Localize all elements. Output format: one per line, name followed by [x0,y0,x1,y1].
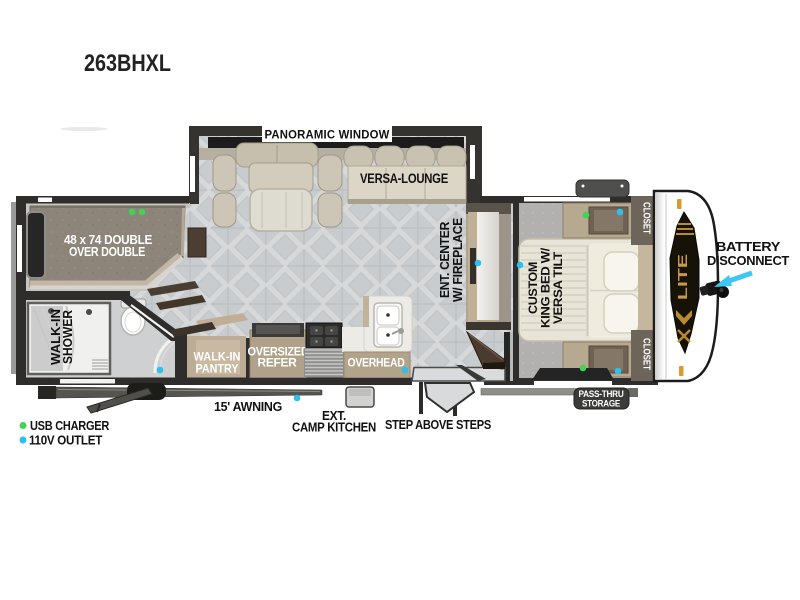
svg-text:W/ FIREPLACE: W/ FIREPLACE [451,218,465,302]
svg-text:VERSA TILT: VERSA TILT [551,251,565,324]
svg-text:110V OUTLET: 110V OUTLET [29,434,103,448]
svg-text:LITE: LITE [675,253,690,300]
svg-text:CLOSET: CLOSET [641,202,653,234]
svg-text:USB CHARGER: USB CHARGER [30,419,109,433]
svg-text:PANTRY: PANTRY [196,362,239,376]
svg-text:263BHXL: 263BHXL [84,50,171,77]
svg-text:DISCONNECT: DISCONNECT [707,254,790,268]
svg-text:BATTERY: BATTERY [716,240,781,254]
svg-text:SHOWER: SHOWER [61,310,75,364]
svg-text:STEP ABOVE STEPS: STEP ABOVE STEPS [385,418,491,432]
svg-text:CAMP KITCHEN: CAMP KITCHEN [292,421,376,435]
svg-text:PANORAMIC WINDOW: PANORAMIC WINDOW [265,130,390,142]
svg-text:STORAGE: STORAGE [582,399,620,410]
svg-text:VERSA-LOUNGE: VERSA-LOUNGE [360,171,448,186]
svg-text:CLOSET: CLOSET [641,338,653,370]
svg-text:OVERHEAD: OVERHEAD [348,358,405,370]
svg-text:15' AWNING: 15' AWNING [214,399,282,414]
svg-text:ENT. CENTER: ENT. CENTER [438,222,452,298]
svg-text:OVER DOUBLE: OVER DOUBLE [69,245,145,259]
svg-text:REFER: REFER [258,358,298,370]
